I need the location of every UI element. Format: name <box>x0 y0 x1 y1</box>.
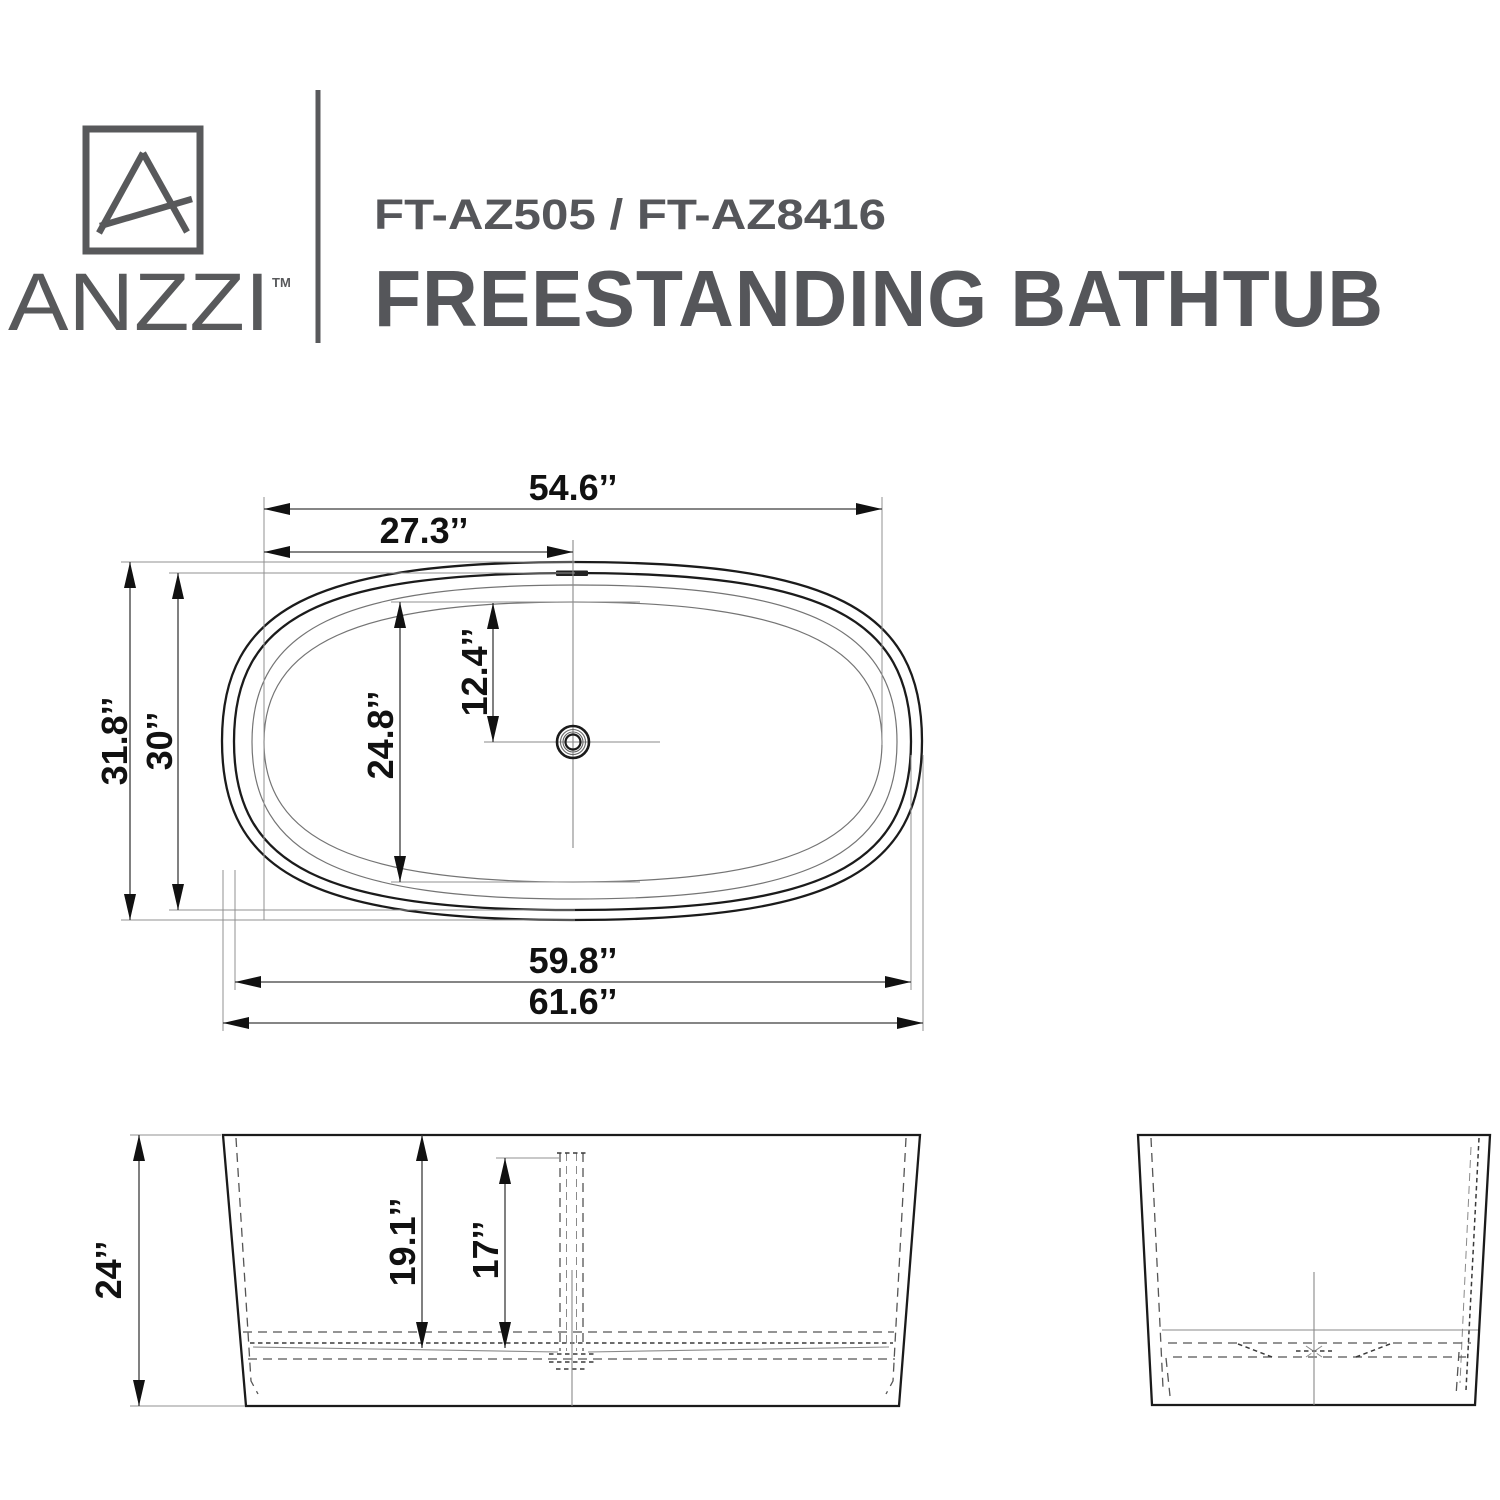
top-view: 54.6’’ 27.3’’ 31.8’’ 30’’ 24.8’’ <box>94 467 923 1031</box>
dim-interior-depth: 19.1’’ <box>382 1135 428 1348</box>
dim-overall-height-label: 24’’ <box>88 1241 129 1300</box>
dim-overflow-height-label: 17’’ <box>465 1221 506 1280</box>
side-basin-floor-slope <box>253 1347 889 1352</box>
top-view-extension-lines <box>121 497 923 1031</box>
dim-drain-from-end-label: 27.3’’ <box>380 510 469 551</box>
end-view <box>1138 1135 1490 1405</box>
dim-drain-from-side: 12.4’’ <box>454 603 499 742</box>
end-corner-hidden-right <box>1456 1352 1459 1396</box>
dim-rim-length-label: 54.6’’ <box>529 467 618 508</box>
page-title: FREESTANDING BATHTUB <box>374 254 1384 343</box>
side-drain-pipe <box>549 1153 594 1406</box>
dim-overall-width: 31.8’’ <box>94 562 136 920</box>
dim-overall-length: 61.6’’ <box>223 981 923 1029</box>
header-titles: FT-AZ505 / FT-AZ8416 FREESTANDING BATHTU… <box>374 191 1384 343</box>
side-inner-wall-left <box>236 1138 258 1394</box>
brand-block: ANZZI TM <box>8 129 291 348</box>
dim-overall-length-label: 61.6’’ <box>529 981 618 1022</box>
dim-rim-length: 54.6’’ <box>264 467 882 515</box>
brand-wordmark: ANZZI <box>8 257 270 348</box>
tub-outer-rim-outline <box>222 562 922 920</box>
dim-drain-from-side-label: 12.4’’ <box>454 628 495 717</box>
dim-overall-width-label: 31.8’’ <box>94 697 135 786</box>
dim-rim-width-label: 30’’ <box>139 712 180 771</box>
spec-sheet: ANZZI TM FT-AZ505 / FT-AZ8416 FREESTANDI… <box>0 0 1500 1500</box>
dim-base-length-label: 59.8’’ <box>529 940 618 981</box>
side-view: 24’’ 19.1’’ 17’’ <box>88 1135 920 1406</box>
end-inner-wall-left <box>1151 1138 1163 1388</box>
dim-basin-width-label: 24.8’’ <box>360 691 401 780</box>
dim-rim-width: 30’’ <box>139 573 184 910</box>
spec-sheet-drawing: ANZZI TM FT-AZ505 / FT-AZ8416 FREESTANDI… <box>0 0 1500 1500</box>
logo-a-mark <box>99 153 192 233</box>
trademark-symbol: TM <box>272 275 291 290</box>
end-inner-wall-right-2 <box>1460 1147 1471 1383</box>
dim-overflow-height: 17’’ <box>465 1158 561 1348</box>
dim-drain-from-end: 27.3’’ <box>264 510 573 558</box>
dim-interior-depth-label: 19.1’’ <box>382 1198 423 1287</box>
logo-square <box>86 129 200 251</box>
dim-overall-height: 24’’ <box>88 1135 245 1406</box>
end-drain-sump <box>1238 1272 1390 1405</box>
dim-basin-width: 24.8’’ <box>360 602 406 882</box>
end-corner-hidden-left <box>1166 1358 1170 1396</box>
model-number: FT-AZ505 / FT-AZ8416 <box>374 191 886 239</box>
